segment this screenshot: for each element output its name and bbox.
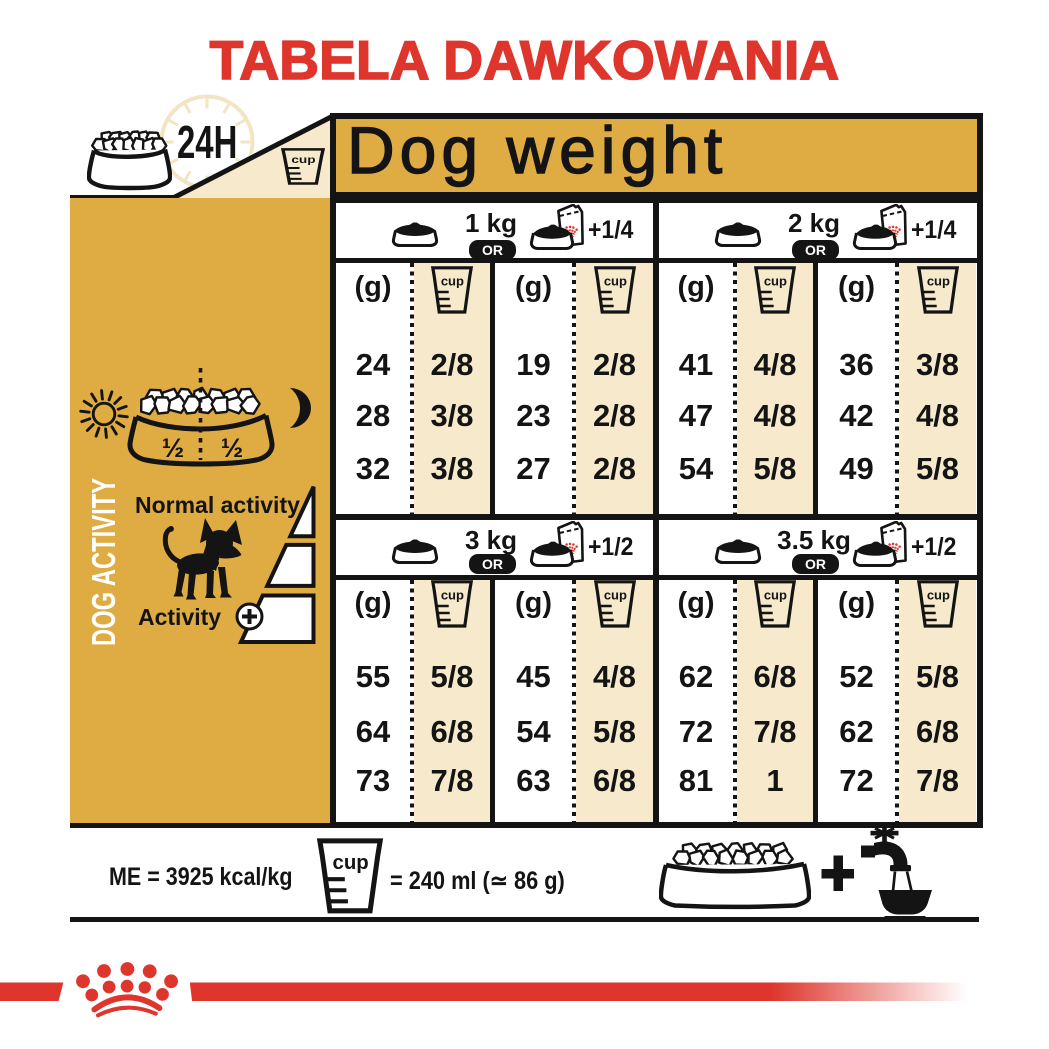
svg-text:cup: cup: [926, 588, 949, 603]
svg-text:cup: cup: [441, 588, 464, 603]
svg-text:cup: cup: [441, 274, 464, 289]
svg-text:cup: cup: [764, 274, 787, 289]
svg-text:cup: cup: [291, 154, 315, 166]
svg-text:cup: cup: [332, 851, 368, 874]
svg-text:cup: cup: [926, 274, 949, 289]
svg-text:cup: cup: [603, 588, 626, 603]
svg-text:cup: cup: [603, 274, 626, 289]
svg-text:cup: cup: [764, 588, 787, 603]
